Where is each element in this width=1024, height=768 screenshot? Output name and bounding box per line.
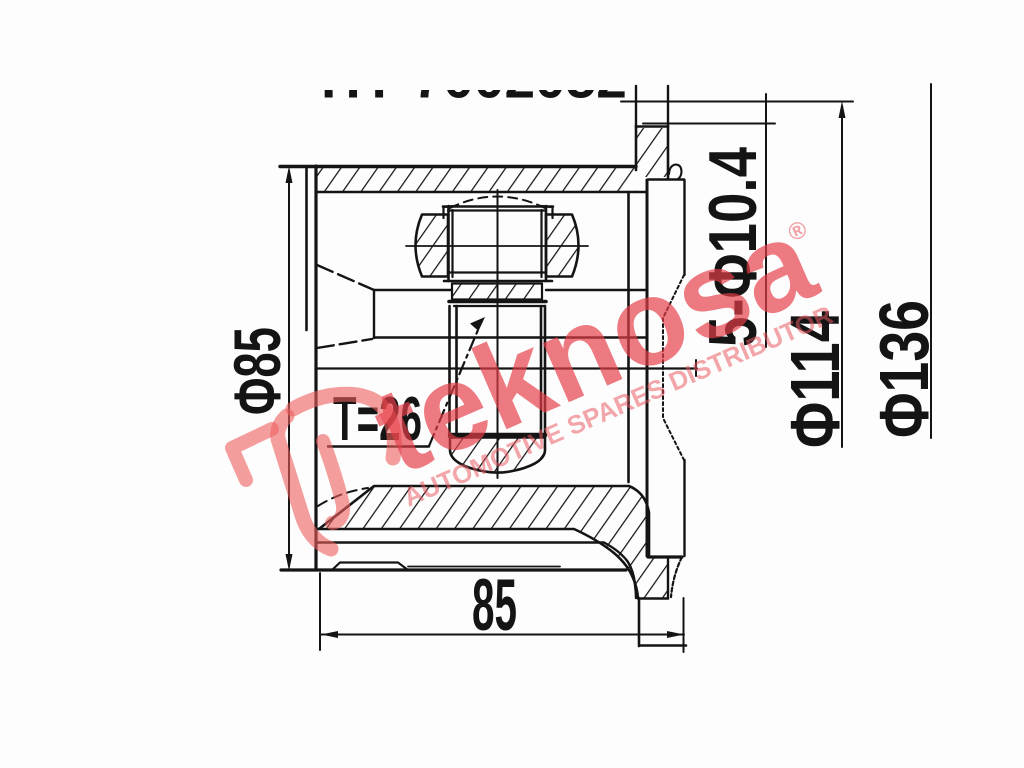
svg-text:HY-7002052: HY-7002052 xyxy=(321,48,627,110)
svg-text:85: 85 xyxy=(472,565,517,646)
svg-text:Φ85: Φ85 xyxy=(220,327,294,415)
svg-text:Φ136: Φ136 xyxy=(865,300,943,438)
